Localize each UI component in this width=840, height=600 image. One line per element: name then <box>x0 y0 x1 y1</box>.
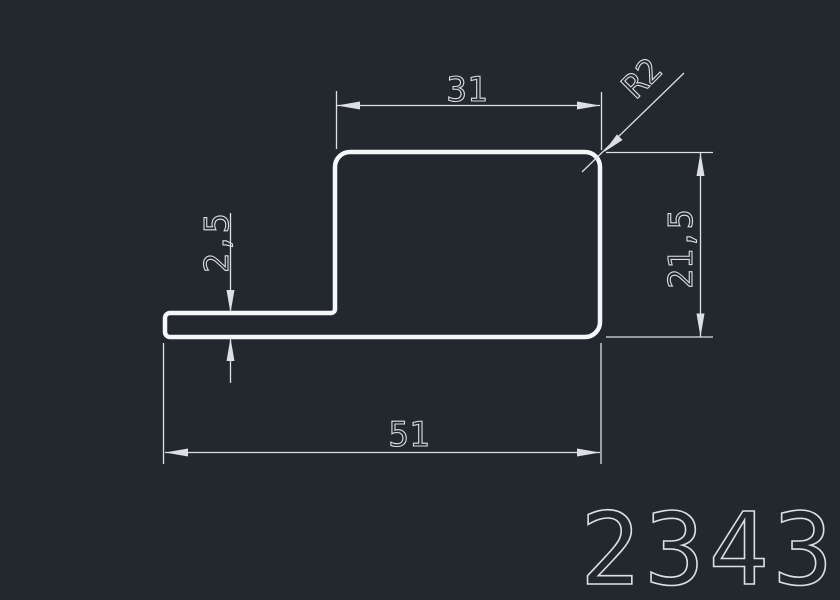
dim-label-side-height: 21,5 <box>661 209 700 288</box>
dim-label-flange-thickness: 2,5 <box>197 213 236 273</box>
part-number: 2343 <box>580 491 837 600</box>
drawing-svg: 31 51 21,5 2,5 R2 2343 <box>0 0 840 600</box>
dim-label-top-width: 31 <box>447 70 488 110</box>
cad-drawing-canvas: 31 51 21,5 2,5 R2 2343 <box>0 0 840 600</box>
dim-label-overall-width: 51 <box>389 415 430 455</box>
